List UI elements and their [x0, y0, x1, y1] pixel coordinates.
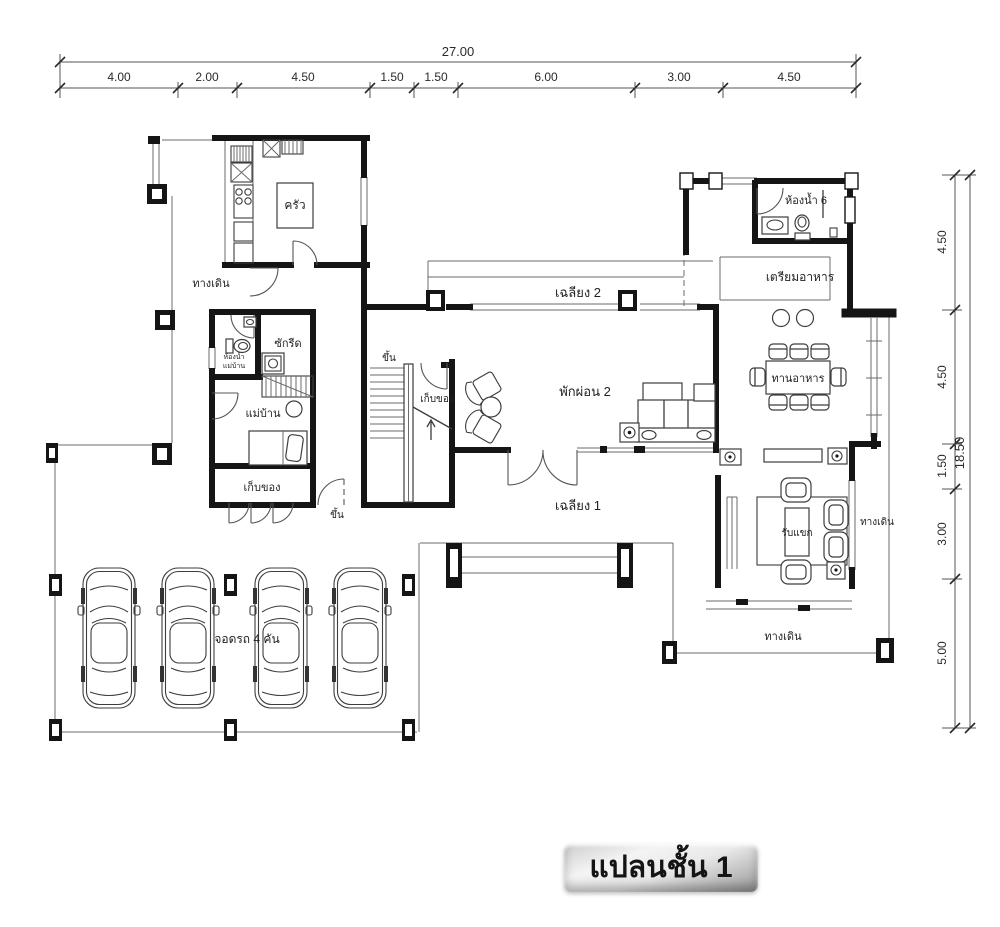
dim-top-seg-5: 6.00 [534, 70, 558, 84]
room-label-maid-bath-2: แม่บ้าน [223, 362, 246, 370]
room-label-food-prep: เตรียมอาหาร [766, 270, 835, 284]
maid-bathroom-fixtures [226, 317, 256, 353]
dim-top-seg-4: 1.50 [424, 70, 448, 84]
dim-top-seg-0: 4.00 [107, 70, 131, 84]
food-prep-fixtures [773, 310, 814, 327]
title-banner: แปลนชั้น 1 [564, 844, 758, 892]
dim-right-total: 18.50 [952, 437, 967, 470]
laundry-fixtures [262, 353, 313, 397]
staircase [370, 364, 452, 502]
room-label-bath6: ห้องน้ำ 6 [785, 192, 827, 207]
plan-doors [212, 188, 783, 523]
dim-top-seg-3: 1.50 [380, 70, 404, 84]
dim-right-seg-0: 4.50 [935, 230, 949, 254]
room-label-laundry: ซักรีด [274, 337, 301, 350]
living-furniture [757, 448, 848, 584]
dim-top-seg-6: 3.00 [667, 70, 691, 84]
room-label-walkway-left: ทางเดิน [192, 278, 230, 290]
car-4 [329, 568, 391, 708]
floor-plan-page: 27.00 4.00 2.00 4.50 1.50 1.50 6.00 3.00… [0, 0, 1000, 927]
room-label-kitchen: ครัว [284, 198, 305, 212]
dim-right-seg-4: 5.00 [935, 641, 949, 665]
room-label-walkway-bottom: ทางเดิน [764, 631, 802, 643]
dim-right-seg-1: 4.50 [935, 365, 949, 389]
room-label-dining: ทานอาหาร [771, 373, 824, 385]
dim-top-seg-1: 2.00 [195, 70, 219, 84]
car-2 [157, 568, 219, 708]
room-label-porch1: เฉลียง 1 [555, 498, 601, 513]
floor-plan-drawing: 27.00 4.00 2.00 4.50 1.50 1.50 6.00 3.00… [0, 0, 1000, 927]
label-up-stairs: ขึ้น [382, 350, 396, 364]
room-label-living: รับแขก [781, 528, 812, 539]
dim-top-seg-2: 4.50 [291, 70, 315, 84]
title-banner-label: แปลนชั้น 1 [589, 851, 732, 884]
room-label-maid: แม่บ้าน [245, 408, 281, 420]
room-label-lounge: พักผ่อน 2 [559, 384, 611, 399]
car-1 [78, 568, 140, 708]
dimension-line-top: 27.00 4.00 2.00 4.50 1.50 1.50 6.00 3.00… [55, 44, 861, 98]
dim-right-seg-3: 3.00 [935, 522, 949, 546]
room-label-carpark: จอดรถ 4 คัน [214, 632, 279, 646]
dimension-line-right: 4.50 4.50 1.50 3.00 5.00 18.50 [935, 170, 976, 733]
dim-top-total: 27.00 [442, 44, 475, 59]
label-up-entrance: ขึ้น [330, 507, 344, 521]
room-label-porch2: เฉลียง 2 [555, 285, 601, 300]
dim-top-seg-7: 4.50 [777, 70, 801, 84]
room-label-stair-storage: เก็บของ [420, 391, 454, 405]
room-label-storage: เก็บของ [244, 480, 281, 494]
dim-right-seg-2: 1.50 [935, 454, 949, 478]
room-label-walkway-right: ทางเดิน [860, 517, 894, 528]
